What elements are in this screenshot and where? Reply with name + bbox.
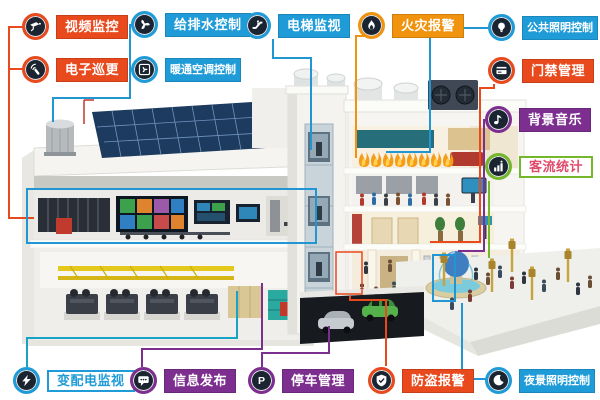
system-item-parking-management: P 停车管理 <box>248 367 354 394</box>
hvac-fan-icon <box>131 56 158 83</box>
security-shield-icon <box>368 367 395 394</box>
system-label: 视频监控 <box>56 15 128 39</box>
system-item-fire-alarm: 火灾报警 <box>358 12 464 39</box>
access-card-icon <box>488 57 515 84</box>
lightning-bolt-icon <box>13 367 40 394</box>
system-item-video-surveillance: 视频监控 <box>22 13 128 40</box>
system-label: 信息发布 <box>164 369 236 393</box>
system-label: 公共照明控制 <box>522 16 598 40</box>
system-item-electronic-patrol: 电子巡更 <box>22 56 128 83</box>
system-label: 电梯监视 <box>278 14 350 38</box>
people-stats-icon <box>485 153 512 180</box>
connector-public-lighting <box>386 28 489 152</box>
system-item-information-release: 信息发布 <box>130 367 236 394</box>
connector-power-distribution <box>27 291 237 367</box>
pump-fan-icon <box>131 11 158 38</box>
system-item-burglar-alarm: 防盗报警 <box>368 367 474 394</box>
system-label: 火灾报警 <box>392 14 464 38</box>
connector-background-music <box>458 120 486 251</box>
highlight-entrance-door <box>336 252 362 294</box>
system-label: 电子巡更 <box>56 58 128 82</box>
system-label: 暖通空调控制 <box>165 58 241 82</box>
system-item-background-music: 背景音乐 <box>485 106 591 133</box>
music-note-icon <box>485 106 512 133</box>
connector-burglar-alarm <box>350 296 386 366</box>
system-item-visitor-flow-statistics: 客流统计 <box>485 153 593 180</box>
moon-icon <box>485 367 512 394</box>
system-item-public-lighting-control: 公共照明控制 <box>488 14 598 41</box>
connector-fire-alarm <box>356 36 367 158</box>
message-bubble-icon <box>130 367 157 394</box>
system-label: 夜景照明控制 <box>519 369 595 393</box>
cctv-camera-icon <box>22 13 49 40</box>
highlight-control-room <box>27 189 316 243</box>
system-item-hvac-control: 暖通空调控制 <box>131 56 241 83</box>
escalator-icon <box>244 12 271 39</box>
connector-parking-management <box>262 326 329 367</box>
system-label: 停车管理 <box>282 369 354 393</box>
connector-elevator-monitoring <box>273 39 311 150</box>
system-item-water-supply-drainage-control: 给排水控制 <box>131 11 251 38</box>
system-label: 给排水控制 <box>165 13 251 37</box>
system-label: 客流统计 <box>519 156 593 178</box>
system-item-elevator-monitoring: 电梯监视 <box>244 12 350 39</box>
system-label: 变配电监视 <box>47 370 135 392</box>
system-label: 背景音乐 <box>519 108 591 132</box>
system-label: 防盗报警 <box>402 369 474 393</box>
system-item-night-lighting-control: 夜景照明控制 <box>485 367 595 394</box>
highlight-street-lamp <box>433 255 455 301</box>
system-item-power-distribution-monitoring: 变配电监视 <box>13 367 135 394</box>
system-label: 门禁管理 <box>522 59 594 83</box>
light-bulb-icon <box>488 14 515 41</box>
flame-icon <box>358 12 385 39</box>
connector-information-release <box>142 283 262 367</box>
parking-p-icon: P <box>248 367 275 394</box>
patrol-wand-icon <box>22 56 49 83</box>
system-item-access-control: 门禁管理 <box>488 57 594 84</box>
svg-text:P: P <box>258 375 265 387</box>
